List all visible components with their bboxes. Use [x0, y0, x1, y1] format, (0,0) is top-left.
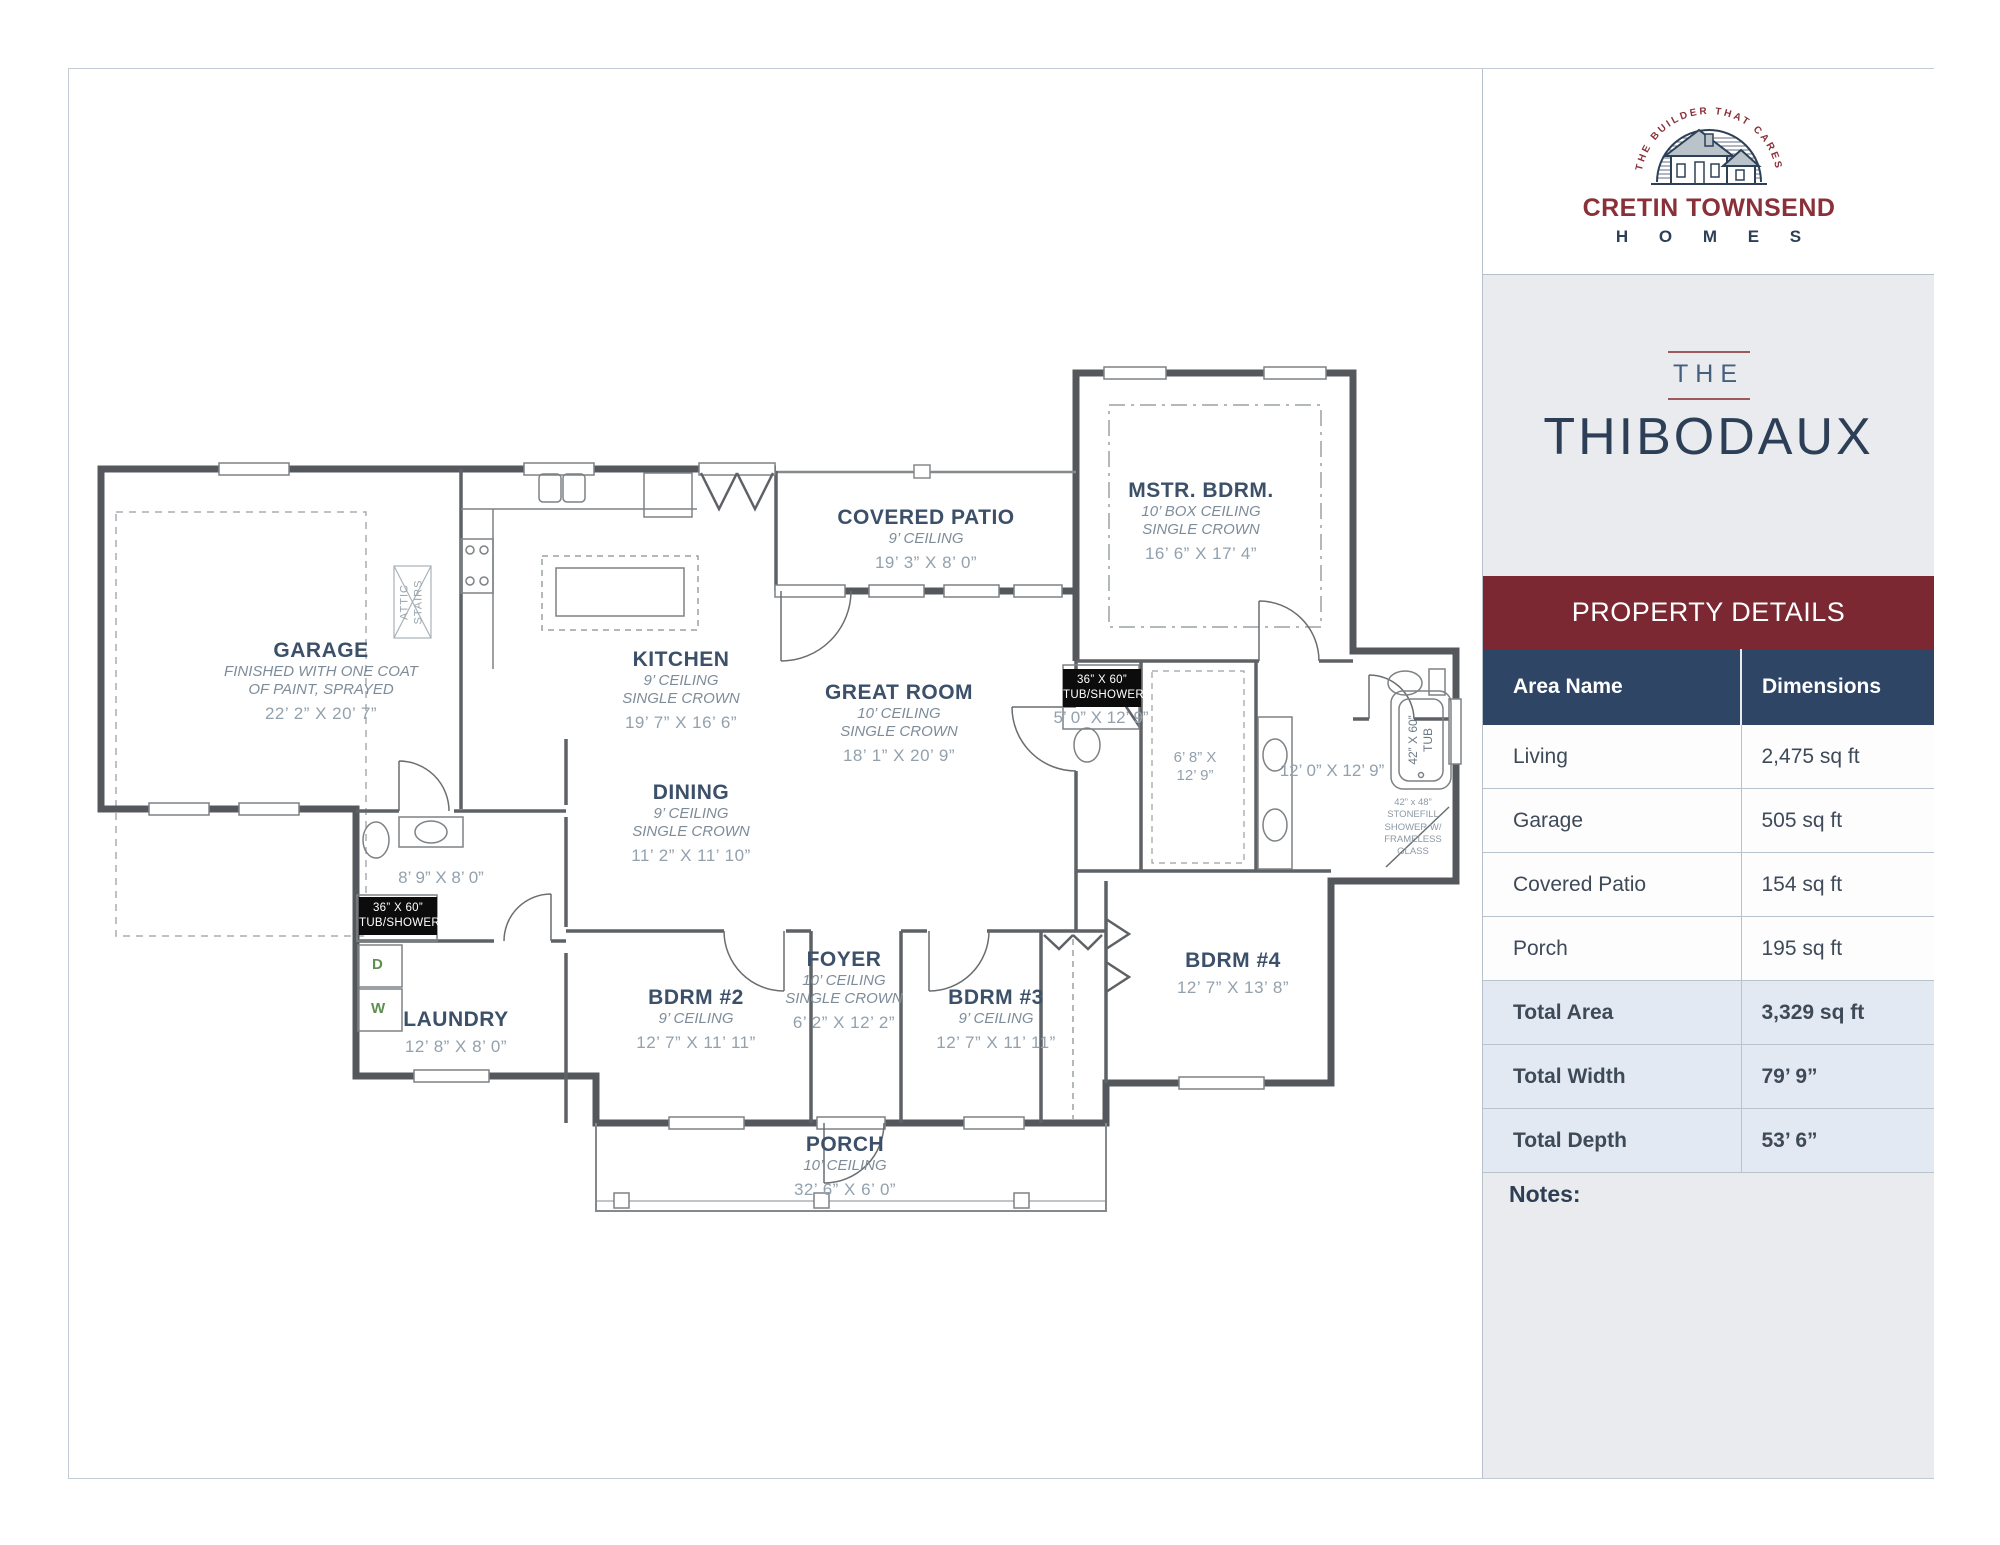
- room-name: MSTR. BDRM.: [1128, 479, 1274, 503]
- kitchen-fixtures: [461, 473, 697, 669]
- floor-plan-drawing: [69, 69, 1482, 1478]
- room-dims: 11’ 2” X 11’ 10”: [631, 846, 751, 866]
- stone-line4: FRAMELESS: [1384, 834, 1442, 845]
- room-ceiling: 9’ CEILING: [837, 530, 1014, 548]
- table-row: Covered Patio 154 sq ft: [1483, 853, 1934, 917]
- room-name: GARAGE: [224, 639, 418, 663]
- room-dims: 12’ 8” X 8’ 0”: [403, 1037, 508, 1057]
- badge-line1: 36” X 60”: [1077, 674, 1127, 686]
- master-bath-dims: 12’ 0” X 12’ 9”: [1280, 761, 1385, 781]
- table-row: Porch 195 sq ft: [1483, 917, 1934, 981]
- room-dims: 12’ 7” X 11’ 11”: [636, 1033, 756, 1053]
- kitchen-label: KITCHEN 9’ CEILING SINGLE CROWN 19’ 7” X…: [622, 648, 740, 733]
- area-cell: Total Depth: [1483, 1109, 1741, 1173]
- room-name: FOYER: [785, 948, 903, 972]
- room-ceiling: 10’ BOX CEILING: [1128, 503, 1274, 521]
- room-name: BDRM #4: [1177, 949, 1289, 973]
- badge-line1: 36” X 60”: [373, 902, 423, 914]
- covered-patio-label: COVERED PATIO 9’ CEILING 19’ 3” X 8’ 0”: [837, 506, 1014, 573]
- table-header-row: Area Name Dimensions: [1483, 649, 1934, 725]
- room-dims: 19’ 3” X 8’ 0”: [837, 553, 1014, 573]
- room-name: KITCHEN: [622, 648, 740, 672]
- porch-label: PORCH 10’ CEILING 32’ 6” X 6’ 0”: [794, 1133, 896, 1200]
- bedroom2-label: BDRM #2 9’ CEILING 12’ 7” X 11’ 11”: [636, 986, 756, 1053]
- room-crown: SINGLE CROWN: [825, 723, 973, 741]
- room-name: BDRM #2: [636, 986, 756, 1010]
- room-name: LAUNDRY: [403, 1008, 508, 1032]
- great-room-label: GREAT ROOM 10’ CEILING SINGLE CROWN 18’ …: [825, 681, 973, 766]
- area-cell: Covered Patio: [1483, 853, 1741, 917]
- room-dims: 12’ 7” X 11’ 11”: [936, 1033, 1056, 1053]
- room-dims: 12’ 7” X 13’ 8”: [1177, 978, 1289, 998]
- brand-logo: THE BUILDER THAT CARES: [1559, 82, 1859, 262]
- stone-line3: SHOWER W/: [1384, 822, 1441, 833]
- attic-stairs-label: ATTIC STAIRS: [398, 580, 426, 625]
- room-crown: SINGLE CROWN: [622, 690, 740, 708]
- tub-label: 42” X 60” TUB: [1406, 715, 1436, 764]
- door-swings: [399, 591, 1449, 1183]
- logo-homes-text: H O M E S: [1615, 227, 1813, 246]
- dimensions-cell: 2,475 sq ft: [1741, 725, 1934, 789]
- room-ceiling: 9’ CEILING: [631, 805, 751, 823]
- room-dims: 6’ 2” X 12’ 2”: [785, 1013, 903, 1033]
- side-panel: THE BUILDER THAT CARES: [1482, 69, 1934, 1478]
- floor-plan: GARAGE FINISHED WITH ONE COAT OF PAINT, …: [69, 69, 1482, 1478]
- area-cell: Porch: [1483, 917, 1741, 981]
- dimensions-cell: 195 sq ft: [1741, 917, 1934, 981]
- bedroom4-label: BDRM #4 12’ 7” X 13’ 8”: [1177, 949, 1289, 998]
- area-cell: Total Width: [1483, 1045, 1741, 1109]
- plan-title: THIBODAUX: [1483, 407, 1934, 467]
- content-frame: GARAGE FINISHED WITH ONE COAT OF PAINT, …: [68, 68, 1934, 1479]
- room-name: COVERED PATIO: [837, 506, 1014, 530]
- room-name: BDRM #3: [936, 986, 1056, 1010]
- property-details-table: Area Name Dimensions Living 2,475 sq ft …: [1483, 649, 1934, 1173]
- room-dims: 32’ 6” X 6’ 0”: [794, 1180, 896, 1200]
- area-cell: Total Area: [1483, 981, 1741, 1045]
- dimensions-cell: 3,329 sq ft: [1741, 981, 1934, 1045]
- brand-logo-section: THE BUILDER THAT CARES: [1483, 69, 1934, 275]
- table-row: Garage 505 sq ft: [1483, 789, 1934, 853]
- room-ceiling: 9’ CEILING: [936, 1010, 1056, 1028]
- room-note: OF PAINT, SPRAYED: [224, 681, 418, 699]
- table-row: Living 2,475 sq ft: [1483, 725, 1934, 789]
- closet-dims-line1: 6’ 8” X: [1174, 749, 1217, 766]
- badge-line2: TUB/SHOWER: [1063, 689, 1144, 701]
- tub-line2: TUB: [1421, 728, 1435, 752]
- notes-label: Notes:: [1509, 1181, 1581, 1208]
- room-ceiling: 10’ CEILING: [825, 705, 973, 723]
- room-note: FINISHED WITH ONE COAT: [224, 663, 418, 681]
- room-ceiling: 9’ CEILING: [622, 672, 740, 690]
- hall-bath-dims: 8’ 9” X 8’ 0”: [398, 868, 484, 888]
- column-header-dimensions: Dimensions: [1741, 649, 1934, 725]
- master-hall-bath-dims: 5’ 0” X 12’ 9”: [1053, 708, 1148, 728]
- master-bedroom-label: MSTR. BDRM. 10’ BOX CEILING SINGLE CROWN…: [1128, 479, 1274, 564]
- table-row-total-area: Total Area 3,329 sq ft: [1483, 981, 1934, 1045]
- kitchen-island-counter-dashed: [542, 556, 698, 630]
- dimensions-cell: 79’ 9”: [1741, 1045, 1934, 1109]
- room-ceiling: 10’ CEILING: [794, 1157, 896, 1175]
- room-crown: SINGLE CROWN: [785, 990, 903, 1008]
- plan-title-prefix-block: THE: [1483, 351, 1934, 400]
- column-header-area: Area Name: [1483, 649, 1741, 725]
- area-cell: Garage: [1483, 789, 1741, 853]
- stonefill-shower-label: 42” x 48” STONEFILL SHOWER W/ FRAMELESS …: [1384, 797, 1442, 859]
- badge-line2: TUB/SHOWER: [359, 917, 440, 929]
- property-details-header: PROPERTY DETAILS: [1483, 576, 1934, 649]
- table-row-total-depth: Total Depth 53’ 6”: [1483, 1109, 1934, 1173]
- room-dims: 18’ 1” X 20’ 9”: [825, 746, 973, 766]
- table-row-total-width: Total Width 79’ 9”: [1483, 1045, 1934, 1109]
- title-rule-bottom: [1668, 398, 1750, 400]
- room-name: DINING: [631, 781, 751, 805]
- house-icon: [1651, 130, 1767, 184]
- garage-door-dashed-outline: [116, 512, 366, 936]
- room-name: PORCH: [794, 1133, 896, 1157]
- room-ceiling: 9’ CEILING: [636, 1010, 756, 1028]
- master-tub-shower-badge: 36” X 60” TUB/SHOWER: [1063, 669, 1141, 707]
- plan-sheet: GARAGE FINISHED WITH ONE COAT OF PAINT, …: [0, 0, 2000, 1545]
- room-crown: SINGLE CROWN: [631, 823, 751, 841]
- logo-company-name: CRETIN TOWNSEND: [1582, 194, 1835, 222]
- room-dims: 22’ 2” X 20’ 7”: [224, 704, 418, 724]
- dimensions-cell: 53’ 6”: [1741, 1109, 1934, 1173]
- patio-post: [914, 465, 930, 478]
- dryer-label: D: [372, 956, 383, 973]
- stone-line2: STONEFILL: [1387, 809, 1439, 820]
- room-dims: 16’ 6” X 17’ 4”: [1128, 544, 1274, 564]
- tub-line1: 42” X 60”: [1406, 715, 1420, 764]
- room-ceiling: 10’ CEILING: [785, 972, 903, 990]
- area-cell: Living: [1483, 725, 1741, 789]
- attic-line2: STAIRS: [412, 580, 424, 625]
- attic-line1: ATTIC: [398, 584, 410, 620]
- dimensions-cell: 505 sq ft: [1741, 789, 1934, 853]
- dining-label: DINING 9’ CEILING SINGLE CROWN 11’ 2” X …: [631, 781, 751, 866]
- washer-label: W: [371, 1000, 385, 1017]
- stone-line1: 42” x 48”: [1394, 797, 1432, 808]
- foyer-label: FOYER 10’ CEILING SINGLE CROWN 6’ 2” X 1…: [785, 948, 903, 1033]
- hall-tub-shower-badge: 36” X 60” TUB/SHOWER: [359, 897, 437, 935]
- laundry-label: LAUNDRY 12’ 8” X 8’ 0”: [403, 1008, 508, 1057]
- stone-line5: GLASS: [1397, 846, 1429, 857]
- bedroom3-label: BDRM #3 9’ CEILING 12’ 7” X 11’ 11”: [936, 986, 1056, 1053]
- dimensions-cell: 154 sq ft: [1741, 853, 1934, 917]
- room-dims: 19’ 7” X 16’ 6”: [622, 713, 740, 733]
- garage-label: GARAGE FINISHED WITH ONE COAT OF PAINT, …: [224, 639, 418, 724]
- closet-dims-line2: 12’ 9”: [1177, 767, 1214, 784]
- room-name: GREAT ROOM: [825, 681, 973, 705]
- plan-title-prefix: THE: [1483, 353, 1934, 398]
- room-crown: SINGLE CROWN: [1128, 521, 1274, 539]
- master-closet-dims: 6’ 8” X 12’ 9”: [1174, 749, 1217, 785]
